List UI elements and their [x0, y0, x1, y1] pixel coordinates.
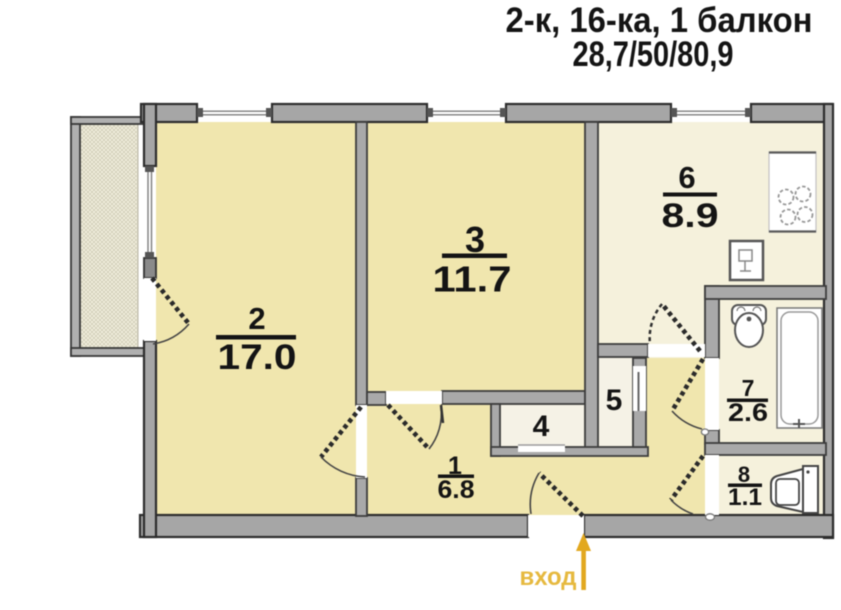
- svg-text:1.1: 1.1: [728, 484, 762, 511]
- svg-text:4: 4: [533, 410, 550, 443]
- svg-text:28,7/50/80,9: 28,7/50/80,9: [573, 35, 734, 74]
- svg-text:11.7: 11.7: [433, 259, 512, 300]
- svg-text:2: 2: [248, 301, 265, 336]
- svg-text:17.0: 17.0: [218, 338, 297, 377]
- svg-text:6: 6: [678, 160, 695, 195]
- svg-text:6.8: 6.8: [438, 476, 475, 504]
- svg-text:7: 7: [742, 375, 755, 401]
- svg-text:2.6: 2.6: [728, 399, 768, 427]
- svg-text:вход: вход: [520, 563, 577, 591]
- svg-text:8.9: 8.9: [662, 197, 719, 235]
- svg-text:5: 5: [606, 384, 623, 417]
